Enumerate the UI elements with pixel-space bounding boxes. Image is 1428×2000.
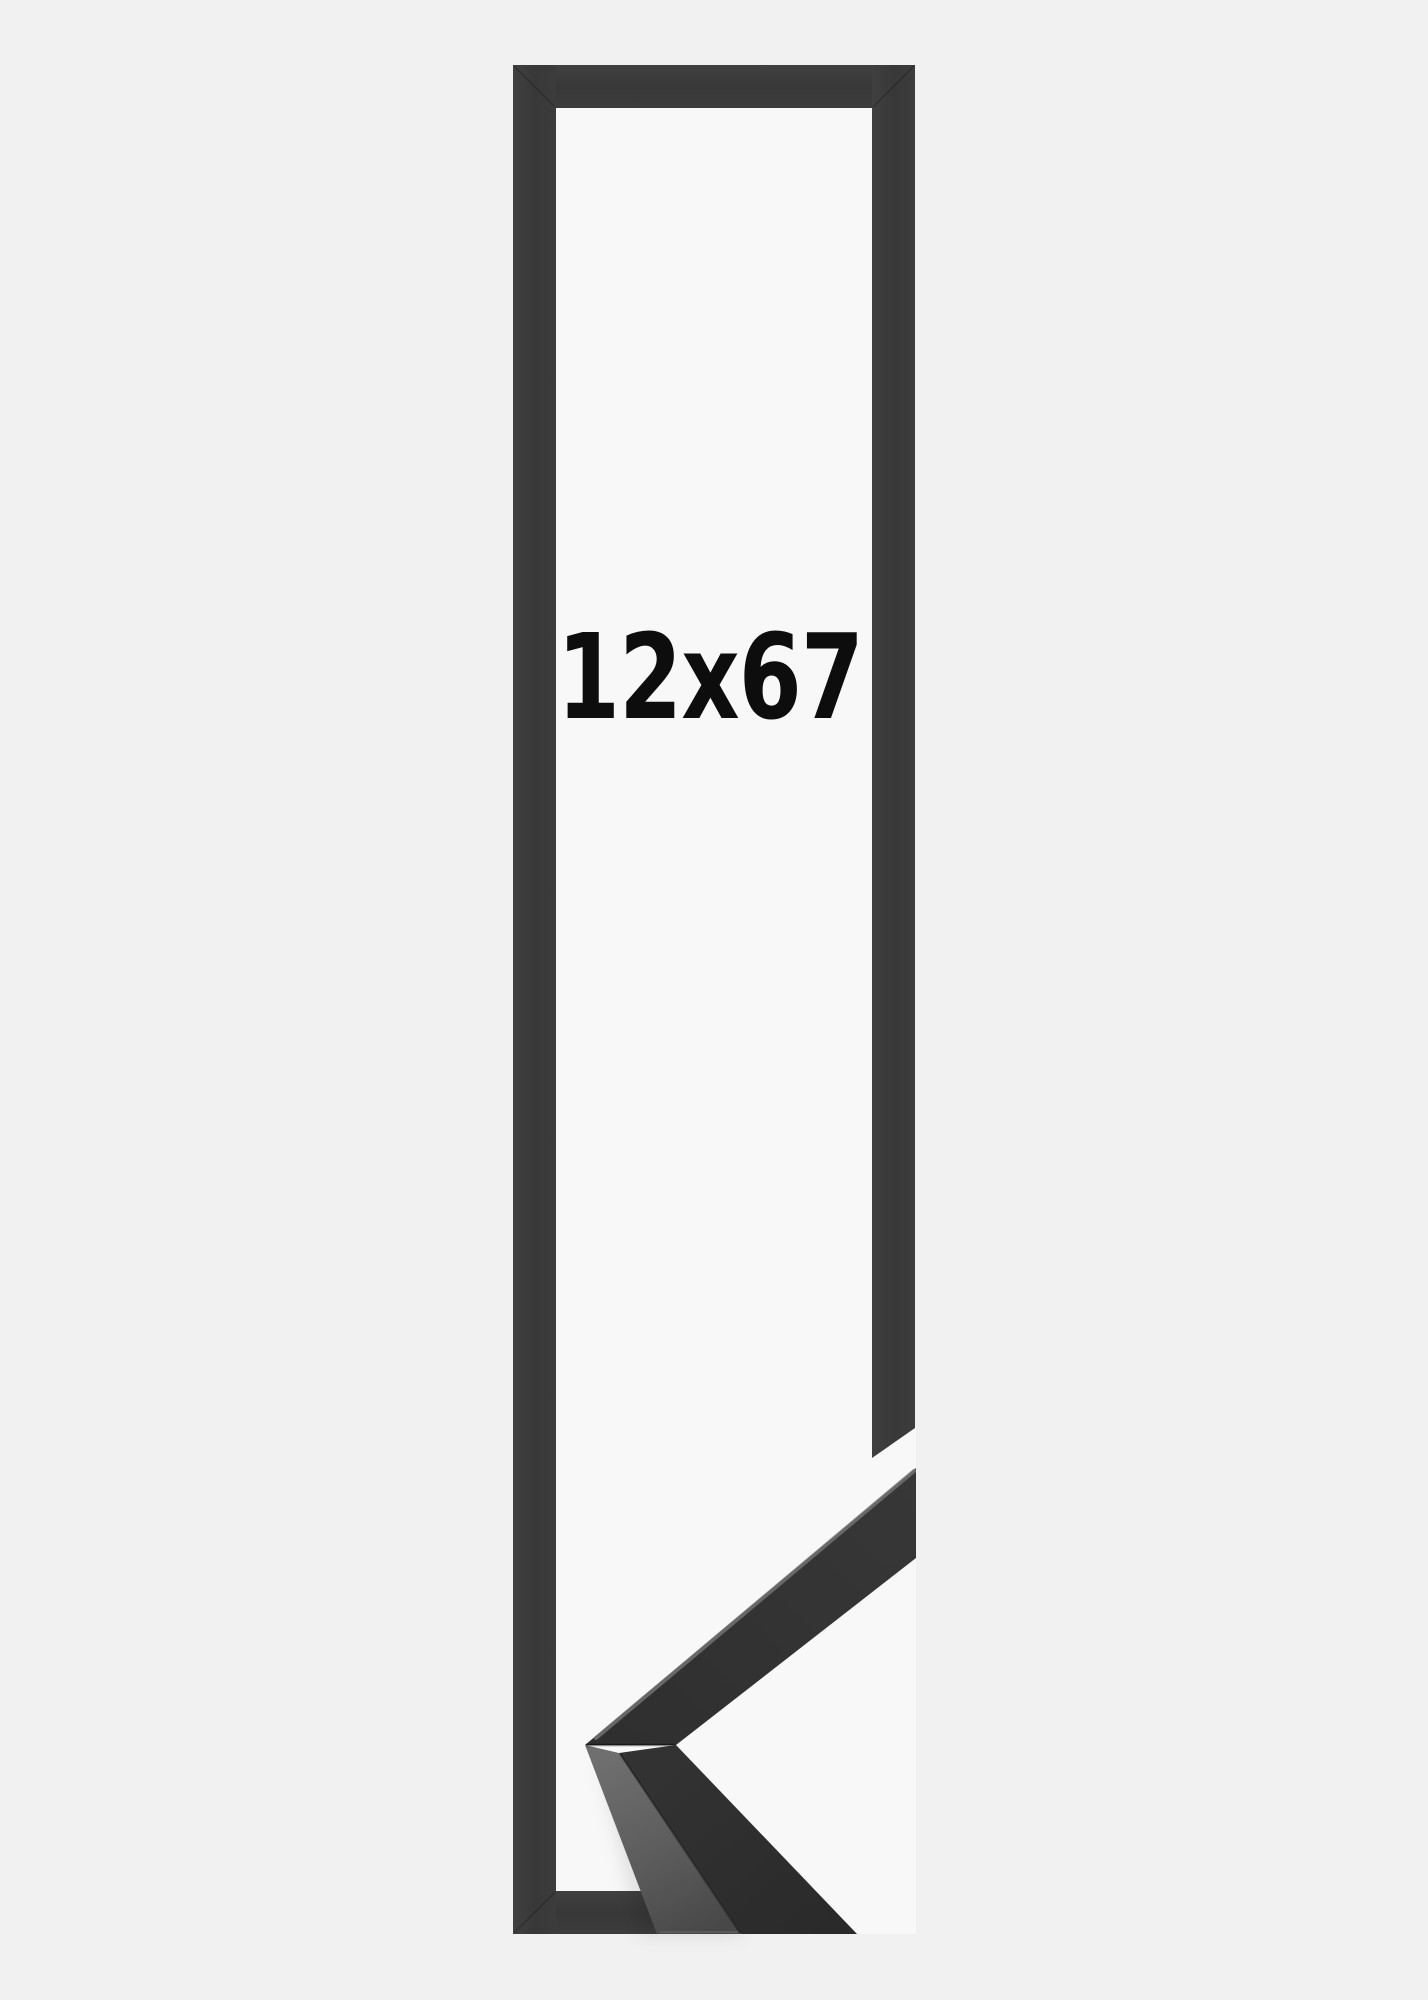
frame-top-bar xyxy=(513,65,915,108)
frame-right-bar xyxy=(872,65,915,1458)
frame-left-bar xyxy=(513,65,556,1934)
size-label: 12x67 xyxy=(557,608,863,746)
frame-product-graphic: 12x67 xyxy=(0,0,1428,2000)
frame-product-image: 12x67 xyxy=(0,0,1428,2000)
